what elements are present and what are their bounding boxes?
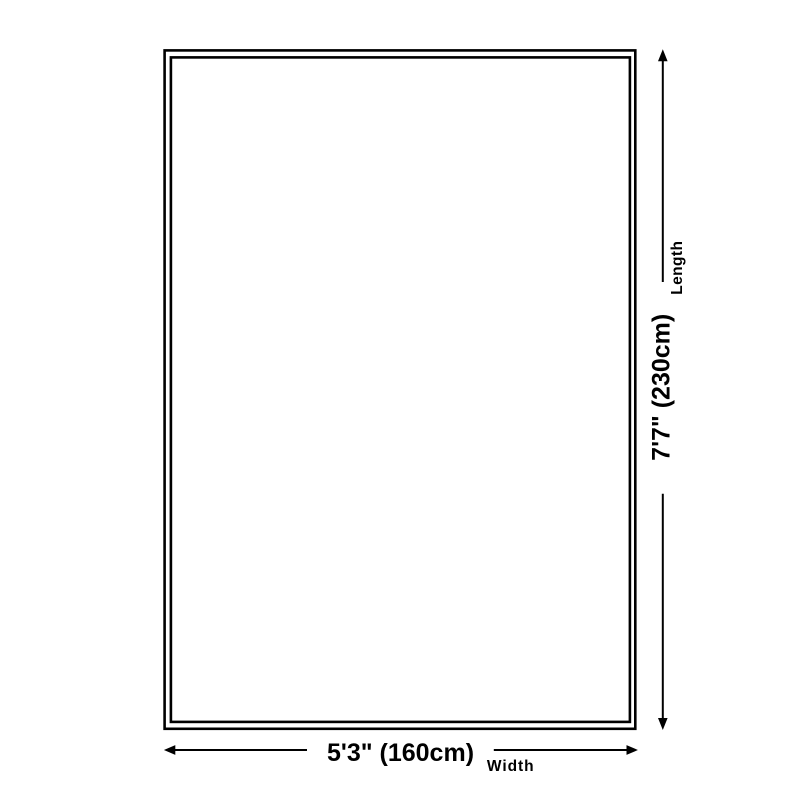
svg-text:5'3" (160cm): 5'3" (160cm) <box>327 739 474 767</box>
svg-text:Length: Length <box>669 241 686 295</box>
svg-text:Width: Width <box>487 758 535 775</box>
svg-text:7'7" (230cm): 7'7" (230cm) <box>648 314 676 461</box>
